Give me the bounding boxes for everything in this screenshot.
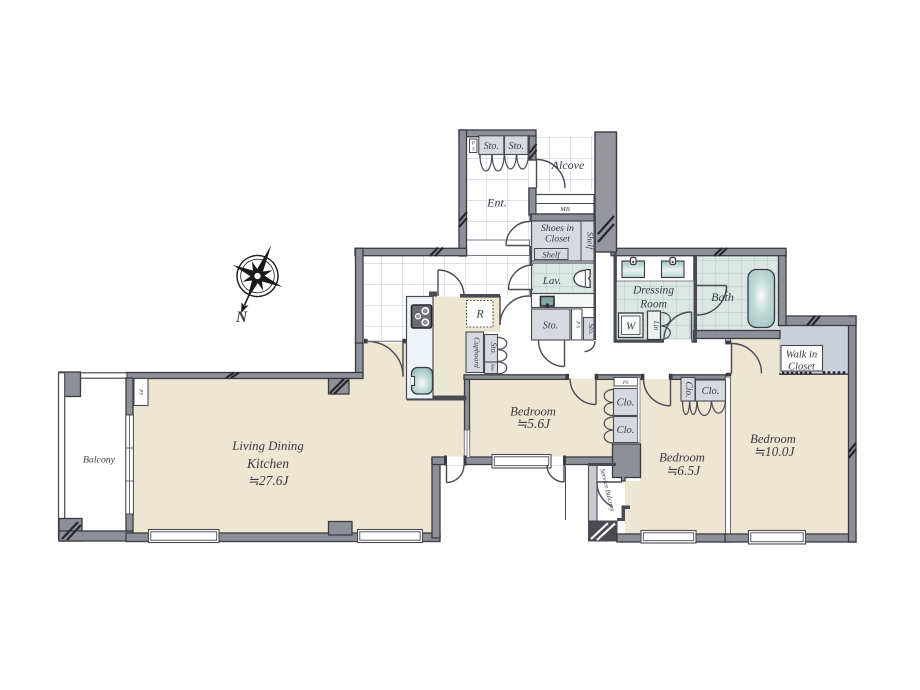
svg-text:≒5.6J: ≒5.6J bbox=[516, 416, 551, 431]
svg-text:Closet: Closet bbox=[545, 234, 570, 245]
svg-text:Shoes in: Shoes in bbox=[541, 223, 574, 234]
svg-text:Ent.: Ent. bbox=[486, 196, 507, 210]
svg-text:PS: PS bbox=[138, 388, 143, 395]
svg-text:W: W bbox=[626, 321, 636, 333]
svg-text:Sto.: Sto. bbox=[489, 342, 498, 354]
svg-text:Sto.: Sto. bbox=[543, 321, 558, 332]
svg-text:Kitchen: Kitchen bbox=[246, 456, 289, 471]
svg-text:Service Balcony: Service Balcony bbox=[598, 468, 616, 513]
svg-text:Walk in: Walk in bbox=[786, 350, 817, 361]
svg-text:Alcove: Alcove bbox=[551, 158, 585, 172]
svg-text:Lin: Lin bbox=[652, 320, 660, 331]
svg-text:Dressing: Dressing bbox=[632, 285, 674, 297]
svg-text:P: P bbox=[471, 142, 475, 147]
svg-text:Clo.: Clo. bbox=[683, 381, 693, 397]
svg-text:P S: P S bbox=[575, 320, 580, 328]
svg-text:Sto.: Sto. bbox=[509, 141, 524, 152]
svg-text:≒27.6J: ≒27.6J bbox=[248, 473, 290, 488]
svg-text:Clo.: Clo. bbox=[702, 386, 720, 397]
svg-text:Shelf: Shelf bbox=[585, 232, 595, 251]
svg-text:R: R bbox=[475, 307, 484, 321]
svg-text:Living Dining: Living Dining bbox=[231, 439, 304, 453]
svg-text:≒6.5J: ≒6.5J bbox=[666, 463, 701, 478]
svg-text:Room: Room bbox=[639, 299, 667, 311]
svg-text:Clo.: Clo. bbox=[617, 398, 635, 409]
svg-text:Cupboard: Cupboard bbox=[473, 337, 482, 368]
svg-text:PS: PS bbox=[622, 381, 629, 386]
svg-text:Lav.: Lav. bbox=[542, 275, 561, 287]
svg-text:Sto.: Sto. bbox=[489, 364, 495, 372]
svg-text:Bath: Bath bbox=[711, 290, 734, 304]
svg-text:S: S bbox=[472, 148, 475, 153]
svg-text:≒10.0J: ≒10.0J bbox=[754, 444, 796, 459]
svg-text:Sto.: Sto. bbox=[587, 323, 596, 335]
svg-text:Closet: Closet bbox=[788, 362, 816, 373]
svg-text:N: N bbox=[235, 309, 248, 326]
svg-text:Shelf: Shelf bbox=[542, 250, 561, 260]
svg-text:Sto.: Sto. bbox=[484, 141, 499, 152]
svg-text:Clo.: Clo. bbox=[617, 425, 635, 436]
svg-text:Balcony: Balcony bbox=[83, 455, 116, 466]
svg-text:MB: MB bbox=[559, 206, 569, 213]
